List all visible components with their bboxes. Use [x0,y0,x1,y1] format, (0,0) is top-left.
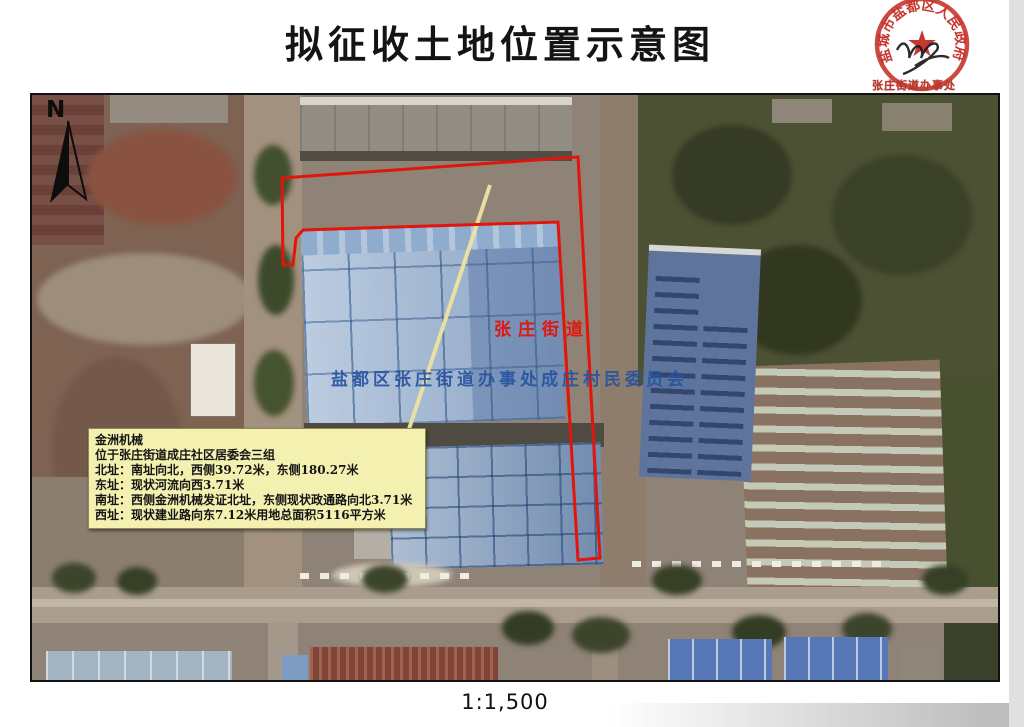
scan-edge-corner [609,703,1009,727]
infobox-name: 金洲机械 [95,433,419,448]
infobox-east-boundary: 东址：现状河流向西3.71米 [95,478,419,493]
infobox-west-boundary: 西址：现状建业路向东7.12米用地总面积5116平方米 [95,508,419,523]
infobox-south-boundary: 南址：西侧金洲机械发证北址，东侧现状政通路向北3.71米 [95,493,419,508]
committee-label: 盐都区张庄街道办事处成庄村民委员会 [331,365,688,390]
parcel-infobox: 金洲机械 位于张庄街道成庄社区居委会三组 北址：南址向北，西侧39.72米，东侧… [88,428,426,529]
street-label: 张庄街道 [494,315,590,340]
infobox-location: 位于张庄街道成庄社区居委会三组 [95,448,419,463]
satellite-map: 张庄街道 盐都区张庄街道办事处成庄村民委员会 金洲机械 位于张庄街道成庄社区居委… [30,93,1000,682]
infobox-north-boundary: 北址：南址向北，西侧39.72米，东侧180.27米 [95,463,419,478]
north-arrow-icon [42,119,94,211]
scan-edge-right [1009,0,1024,727]
infobox-leader-line [407,185,490,435]
secondary-stamp-text: 张庄街道办事处 [872,77,982,93]
